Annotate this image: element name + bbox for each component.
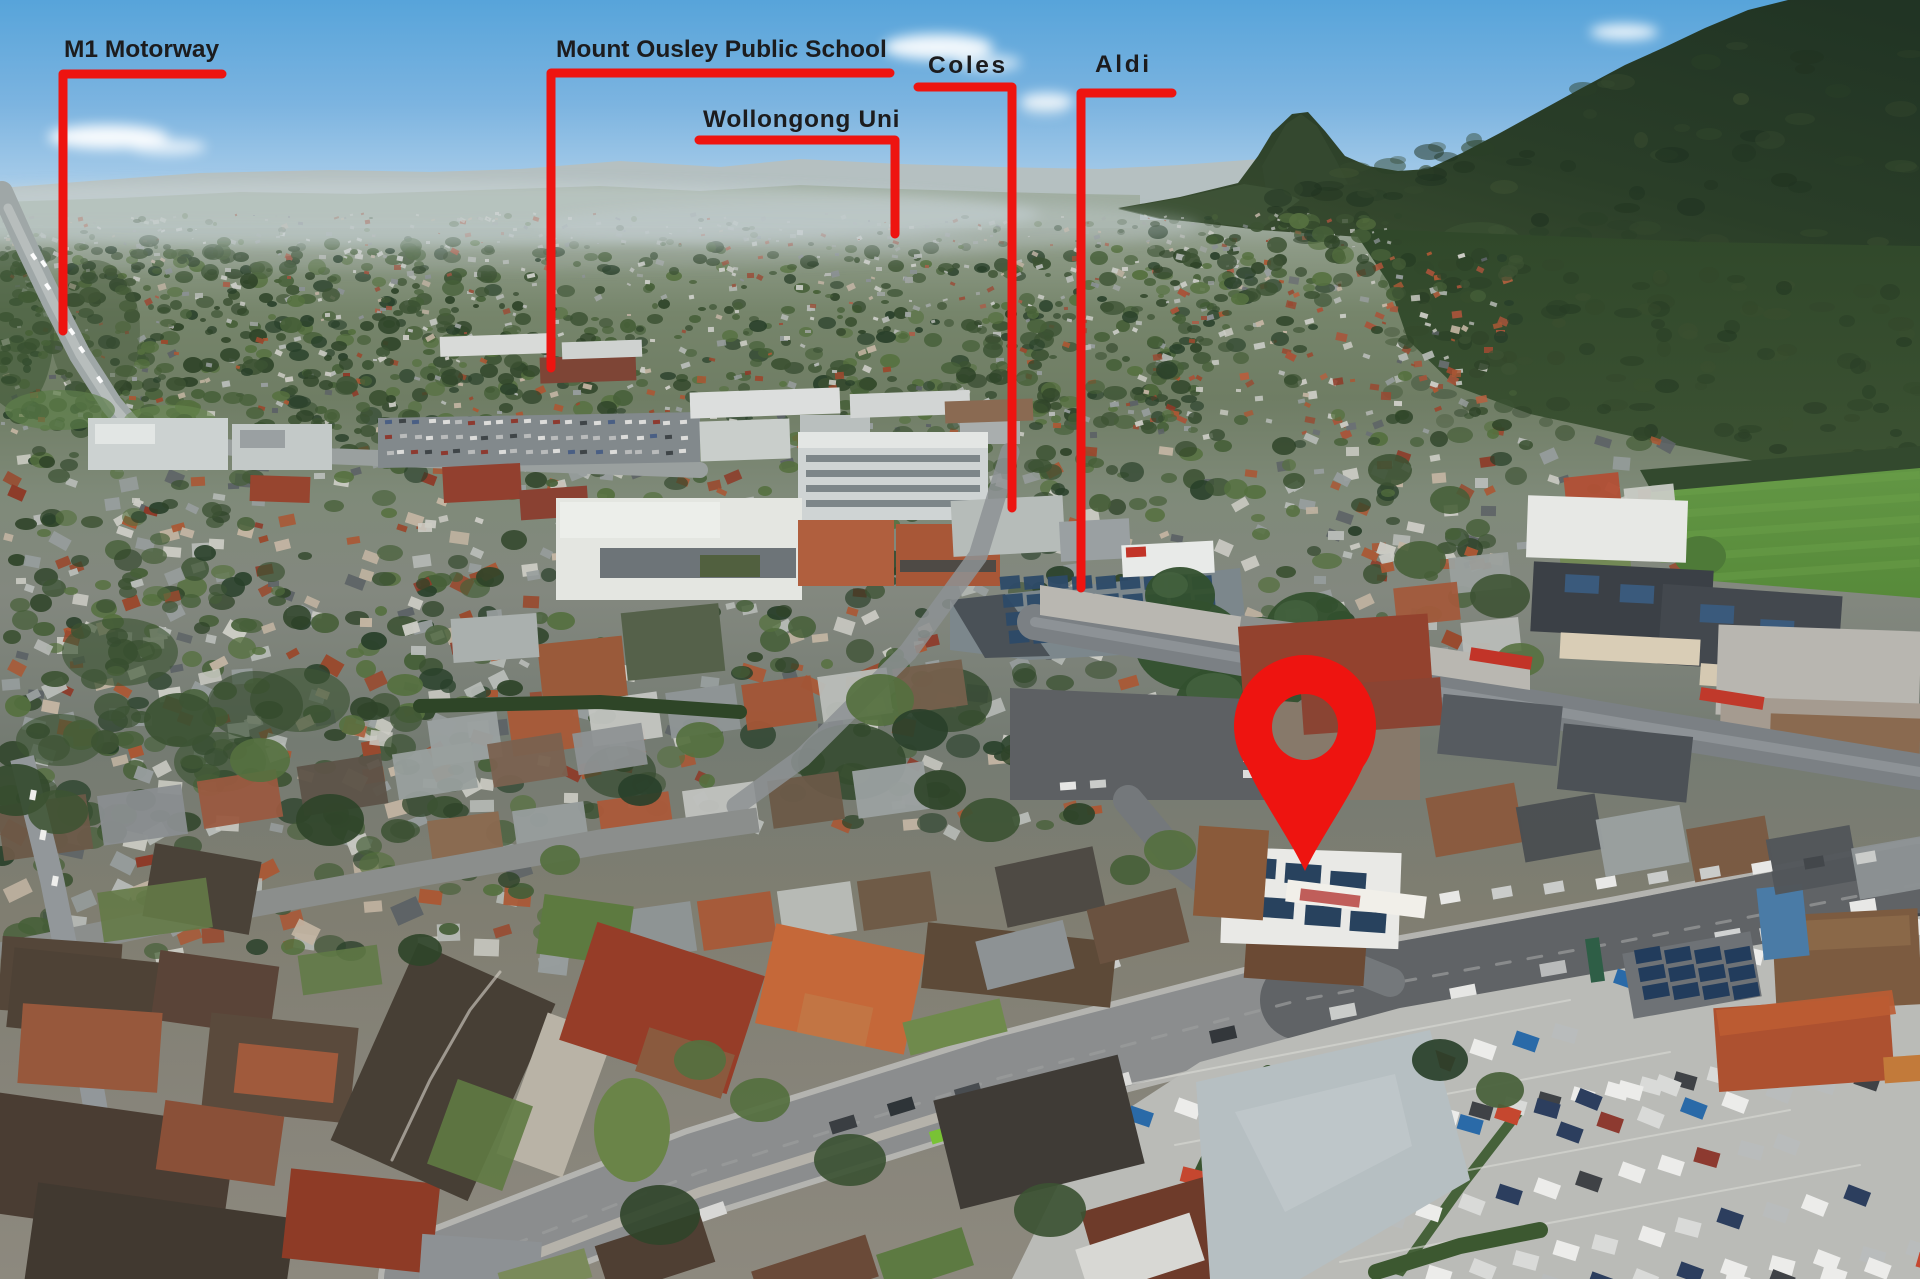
svg-text:Wollongong Uni: Wollongong Uni	[703, 106, 900, 133]
svg-text:Coles: Coles	[928, 52, 1008, 79]
svg-text:Aldi: Aldi	[1095, 51, 1152, 78]
svg-text:Mount Ousley Public School: Mount Ousley Public School	[556, 36, 887, 63]
svg-text:M1 Motorway: M1 Motorway	[64, 36, 220, 63]
